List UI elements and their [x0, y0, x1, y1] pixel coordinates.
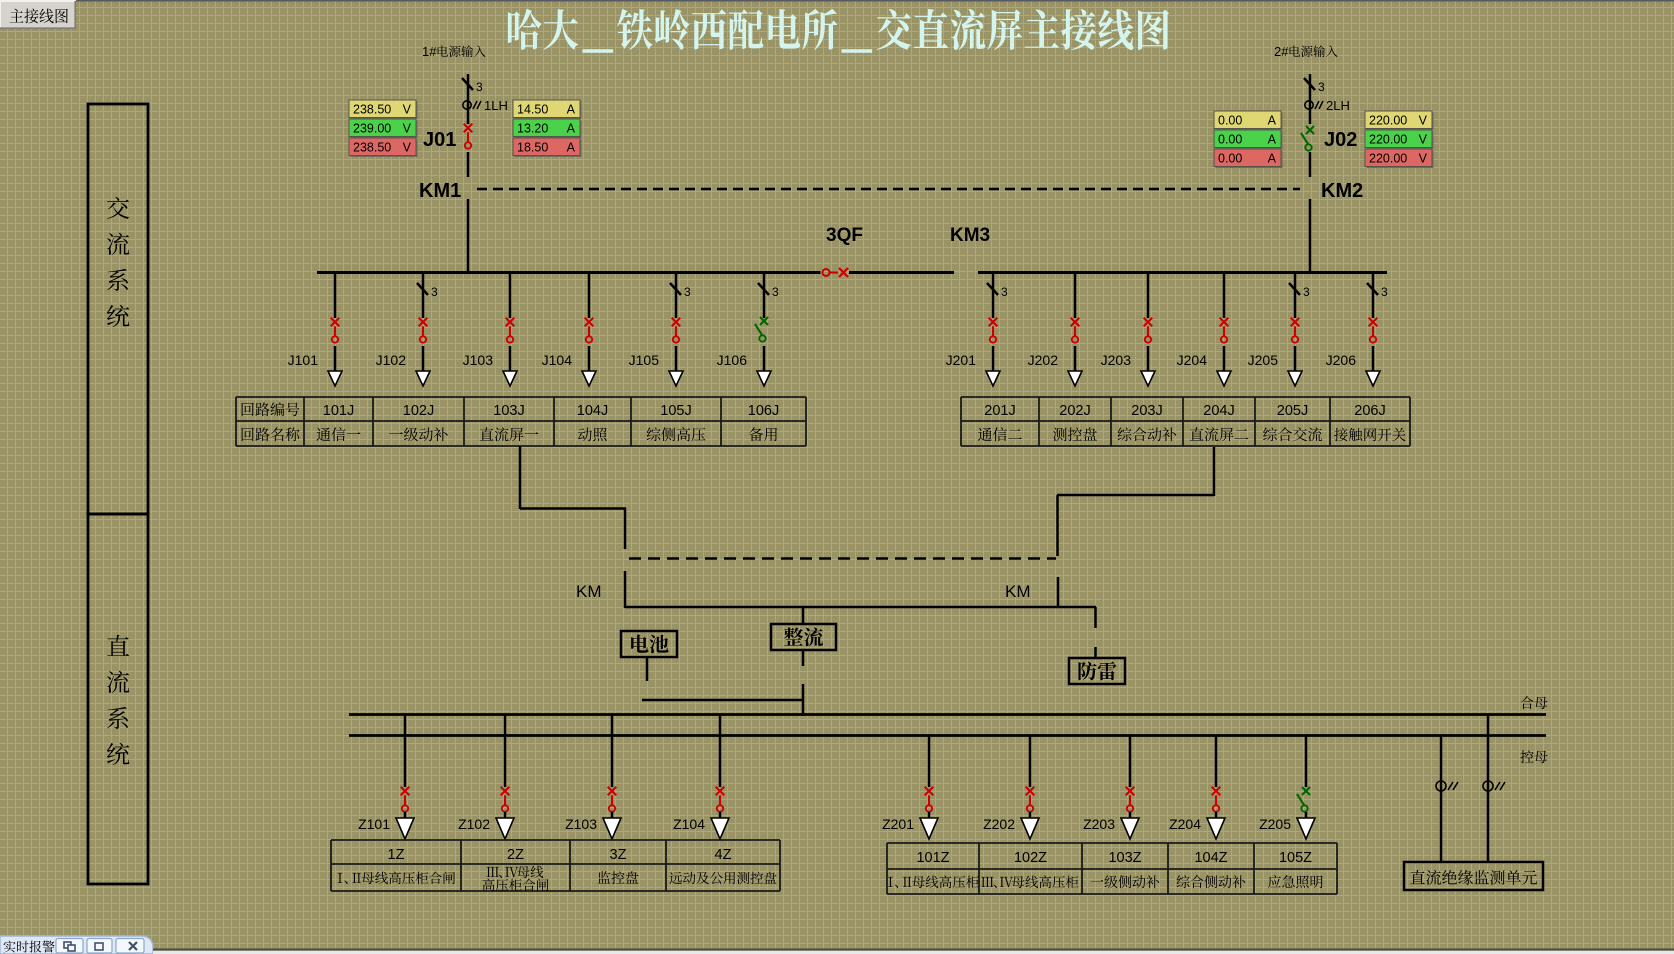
svg-text:Z104: Z104 — [673, 816, 705, 832]
svg-text:3: 3 — [431, 285, 438, 299]
svg-text:3: 3 — [1318, 80, 1325, 94]
svg-text:J201: J201 — [946, 352, 977, 368]
svg-text:0.00: 0.00 — [1218, 133, 1242, 147]
svg-text:0.00: 0.00 — [1218, 152, 1242, 166]
svg-text:220.00: 220.00 — [1369, 133, 1407, 147]
svg-text:KM: KM — [576, 582, 602, 601]
svg-text:V: V — [1419, 133, 1428, 147]
svg-text:J205: J205 — [1248, 352, 1279, 368]
svg-text:V: V — [403, 103, 412, 117]
svg-text:2#: 2# — [1274, 44, 1289, 59]
svg-text:Z201: Z201 — [882, 816, 914, 832]
svg-text:201J: 201J — [984, 403, 1015, 419]
svg-text:J104: J104 — [542, 352, 573, 368]
svg-text:Z202: Z202 — [983, 816, 1015, 832]
svg-text:239.00: 239.00 — [353, 122, 391, 136]
svg-text:220.00: 220.00 — [1369, 152, 1407, 166]
svg-text:3: 3 — [684, 285, 691, 299]
svg-text:202J: 202J — [1059, 403, 1090, 419]
svg-text:J105: J105 — [629, 352, 660, 368]
svg-text:J203: J203 — [1101, 352, 1132, 368]
svg-text:101J: 101J — [323, 403, 354, 419]
svg-text:1Z: 1Z — [388, 847, 405, 863]
svg-text:1#: 1# — [422, 44, 437, 59]
svg-text:J01: J01 — [423, 129, 456, 151]
svg-text:102Z: 102Z — [1014, 850, 1047, 866]
svg-text:205J: 205J — [1277, 403, 1308, 419]
svg-text:J102: J102 — [376, 352, 407, 368]
svg-text:A: A — [1268, 152, 1277, 166]
svg-text:104J: 104J — [577, 403, 608, 419]
svg-text:105Z: 105Z — [1279, 850, 1312, 866]
svg-text:KM2: KM2 — [1321, 180, 1363, 202]
svg-text:103Z: 103Z — [1108, 850, 1141, 866]
svg-text:3: 3 — [1303, 285, 1310, 299]
svg-text:KM: KM — [1005, 582, 1031, 601]
svg-text:2LH: 2LH — [1326, 98, 1350, 113]
svg-text:1LH: 1LH — [484, 98, 508, 113]
svg-text:0.00: 0.00 — [1218, 114, 1242, 128]
svg-text:A: A — [1268, 133, 1277, 147]
svg-text:A: A — [567, 122, 576, 136]
svg-text:V: V — [1419, 152, 1428, 166]
svg-text:3: 3 — [1381, 285, 1388, 299]
svg-text:206J: 206J — [1354, 403, 1385, 419]
svg-text:Z103: Z103 — [565, 816, 597, 832]
svg-text:220.00: 220.00 — [1369, 114, 1407, 128]
svg-text:101Z: 101Z — [916, 850, 949, 866]
svg-text:KM1: KM1 — [419, 180, 461, 202]
svg-text:J106: J106 — [717, 352, 748, 368]
svg-text:J103: J103 — [463, 352, 494, 368]
svg-text:Z205: Z205 — [1259, 816, 1291, 832]
svg-text:V: V — [1419, 114, 1428, 128]
svg-text:J206: J206 — [1326, 352, 1357, 368]
svg-text:13.20: 13.20 — [517, 122, 548, 136]
svg-text:102J: 102J — [403, 403, 434, 419]
svg-text:3: 3 — [476, 80, 483, 94]
svg-text:204J: 204J — [1203, 403, 1234, 419]
svg-text:J02: J02 — [1324, 129, 1357, 151]
svg-text:J101: J101 — [288, 352, 319, 368]
svg-text:106J: 106J — [748, 403, 779, 419]
svg-text:J204: J204 — [1177, 352, 1208, 368]
svg-text:2Z: 2Z — [507, 847, 524, 863]
svg-text:A: A — [567, 141, 576, 155]
svg-text:105J: 105J — [660, 403, 691, 419]
svg-text:Z203: Z203 — [1083, 816, 1115, 832]
svg-text:203J: 203J — [1131, 403, 1162, 419]
svg-text:4Z: 4Z — [715, 847, 732, 863]
svg-text:Z204: Z204 — [1169, 816, 1201, 832]
svg-text:104Z: 104Z — [1194, 850, 1227, 866]
svg-text:A: A — [1268, 114, 1277, 128]
svg-text:3Z: 3Z — [610, 847, 627, 863]
svg-text:Z102: Z102 — [458, 816, 490, 832]
svg-text:103J: 103J — [493, 403, 524, 419]
svg-text:J202: J202 — [1028, 352, 1059, 368]
svg-text:3QF: 3QF — [826, 225, 863, 246]
svg-text:238.50: 238.50 — [353, 103, 391, 117]
svg-text:3: 3 — [772, 285, 779, 299]
svg-text:A: A — [567, 103, 576, 117]
svg-text:3: 3 — [1001, 285, 1008, 299]
svg-text:18.50: 18.50 — [517, 141, 548, 155]
svg-text:14.50: 14.50 — [517, 103, 548, 117]
svg-text:238.50: 238.50 — [353, 141, 391, 155]
svg-text:V: V — [403, 141, 412, 155]
svg-text:Z101: Z101 — [358, 816, 390, 832]
svg-text:KM3: KM3 — [950, 225, 990, 246]
svg-text:V: V — [403, 122, 412, 136]
